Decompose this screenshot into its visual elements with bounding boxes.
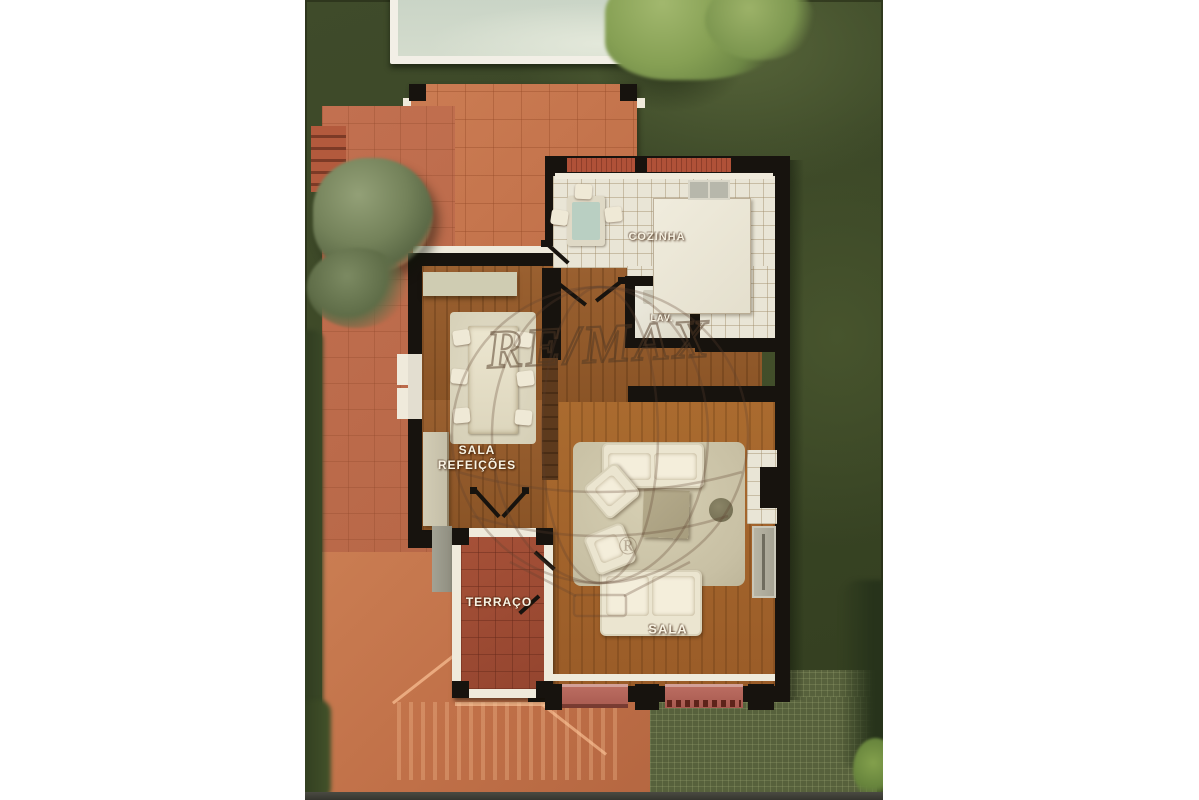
label-terraco: TERRAÇO <box>466 595 532 609</box>
kitchen-chair-top <box>575 184 593 200</box>
label-sala-refeicoes: SALA REFEIÇÕES <box>438 443 516 473</box>
watermark-brand-text: RE/MAX <box>484 308 713 380</box>
south-post-left <box>545 684 562 710</box>
south-window-right <box>665 684 743 708</box>
roof-ridge-top <box>455 702 547 706</box>
bush-bottom-left <box>305 700 331 800</box>
patio-post-left <box>409 84 426 101</box>
roof-ridge-left <box>392 653 457 705</box>
kitchen-chair-right <box>604 206 622 223</box>
trim-living-south <box>545 674 775 681</box>
terrace-post-sw <box>452 681 469 698</box>
patio-post-right <box>620 84 637 101</box>
south-window-left <box>558 684 628 708</box>
bush-left-small <box>307 248 407 328</box>
south-post-right <box>748 684 774 710</box>
patio-post-trim-right <box>637 98 645 108</box>
kitchen-window <box>688 180 730 200</box>
watermark-registered-mark: ® <box>618 531 638 560</box>
kitchen-chair-left <box>550 209 569 226</box>
label-cozinha: COZINHA <box>628 231 685 243</box>
awning-red-left <box>567 158 635 172</box>
floor-plan-image: RE/MAX ® COZINHA LAV. SALA REFEIÇÕES TER… <box>0 0 1199 800</box>
balloon-basket <box>574 595 626 616</box>
balloon-rigging-lines <box>510 562 690 596</box>
label-sala-refeicoes-line1: SALA <box>438 443 516 458</box>
awning-red-right <box>647 158 731 172</box>
label-sala: SALA <box>648 622 687 637</box>
south-post-mid <box>635 684 659 710</box>
kitchen-window-pane-divider <box>708 180 710 200</box>
trim-kitchen-north <box>555 173 773 179</box>
kitchen-table <box>567 196 605 246</box>
label-sala-refeicoes-line2: REFEIÇÕES <box>438 458 516 473</box>
kitchen-table-top <box>572 202 600 240</box>
bottom-edge-strip <box>305 792 883 800</box>
floor-plan-scene: RE/MAX ® COZINHA LAV. SALA REFEIÇÕES TER… <box>305 0 883 800</box>
label-lav: LAV. <box>650 313 673 323</box>
remax-watermark: RE/MAX ® <box>360 240 840 630</box>
south-window-right-slats <box>667 700 741 707</box>
